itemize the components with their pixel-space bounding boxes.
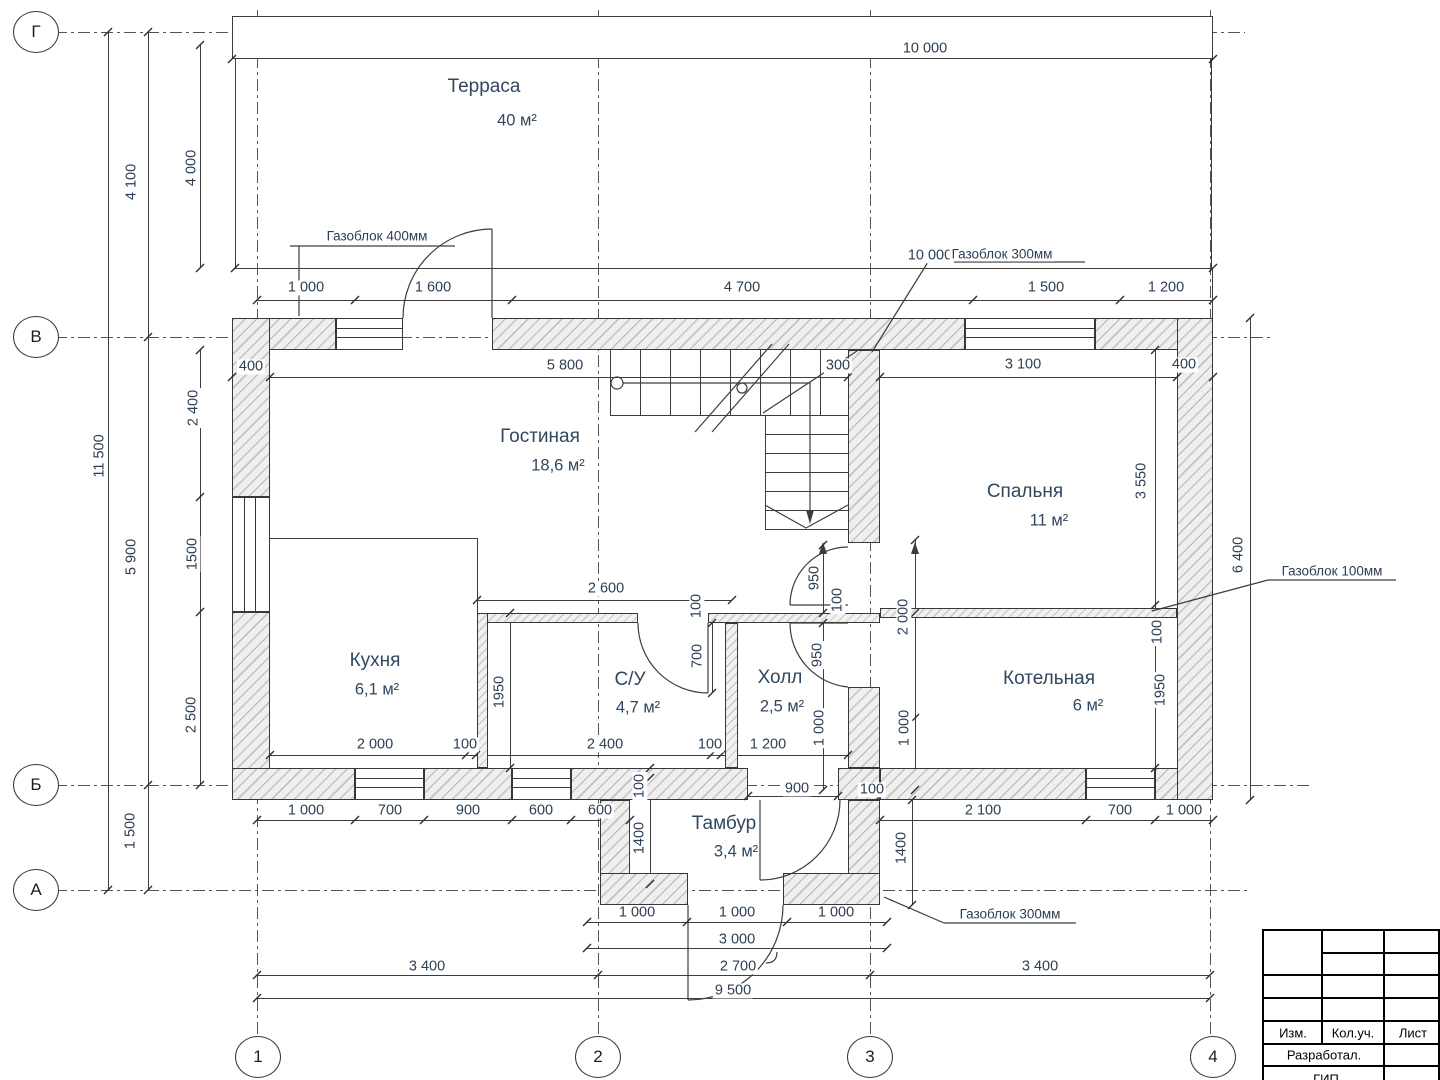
grid-bubble-a: А	[13, 869, 59, 911]
dim-line	[587, 922, 887, 923]
dimension-label: 1950	[492, 674, 507, 710]
grid-bubble-label: 1	[253, 1047, 262, 1067]
dim-line	[880, 377, 1213, 378]
room-label-hall: Холл	[758, 667, 803, 689]
title-block: Изм. Кол.уч. Лист Разработал. ГИП	[1262, 929, 1440, 1080]
dimension-ticks	[104, 28, 1254, 1002]
stair-bottom-line	[610, 415, 768, 416]
dimension-label: 700	[690, 642, 705, 670]
dimension-label: 1 200	[1146, 280, 1186, 295]
grid-bubble-3: 3	[847, 1036, 893, 1078]
dimension-label: 10 000	[901, 41, 949, 56]
dimension-label: 950	[810, 641, 825, 669]
stair-horizontal-run	[610, 350, 848, 415]
title-block-izm: Изм.	[1279, 1026, 1307, 1041]
stair-vertical-run	[765, 415, 848, 530]
dimension-label: 3 400	[407, 959, 447, 974]
dim-line	[270, 755, 848, 756]
dim-line	[915, 540, 916, 790]
room-label-boiler: Котельная	[1003, 668, 1095, 690]
wall-stair	[848, 687, 880, 768]
dimension-label: 5 800	[545, 358, 585, 373]
dimension-label: 900	[454, 803, 482, 818]
note-gasblock-400: Газоблок 400мм	[325, 229, 430, 244]
dimension-label: 1 000	[1164, 803, 1204, 818]
grid-line-2	[598, 10, 599, 1036]
dimension-label: 5 900	[124, 537, 139, 577]
room-label-vestibule: Тамбур	[692, 813, 757, 835]
dimension-label: 600	[586, 803, 614, 818]
dimension-label: 4 100	[124, 162, 139, 202]
kitchen-right-line	[477, 538, 478, 613]
dimension-label: 11 500	[92, 432, 107, 479]
dim-line	[712, 623, 713, 693]
dimension-label: 1 000	[717, 905, 757, 920]
stair-run-left-line	[765, 415, 766, 530]
dimension-label: 1500	[185, 536, 200, 572]
dimension-label: 3 550	[1134, 461, 1149, 501]
wall-right	[1177, 318, 1213, 800]
dimension-label: 2 000	[896, 597, 911, 637]
dimension-label: 1 000	[897, 708, 912, 748]
window	[336, 318, 403, 350]
dimension-label: 1400	[894, 830, 909, 866]
wall-top	[492, 318, 965, 350]
dimension-label: 600	[527, 803, 555, 818]
dimension-label: 1 000	[286, 280, 326, 295]
wall-bottom	[571, 768, 748, 800]
room-area-living: 18,6 м²	[531, 457, 585, 476]
dimension-label: 1 500	[123, 811, 138, 851]
dimension-label: 1 600	[413, 280, 453, 295]
room-area-boiler: 6 м²	[1073, 697, 1104, 716]
dimension-label: 3 100	[1003, 357, 1043, 372]
title-block-koluch: Кол.уч.	[1332, 1026, 1375, 1041]
grid-bubble-label: В	[30, 327, 41, 347]
title-block-razrabotal: Разработал.	[1287, 1048, 1361, 1063]
title-block-list: Лист	[1399, 1026, 1427, 1041]
title-block-gip: ГИП	[1313, 1072, 1339, 1080]
grid-bubble-b: Б	[13, 764, 59, 806]
right-edge-segment	[1212, 268, 1213, 318]
dimension-label: 3 400	[1020, 959, 1060, 974]
dimension-label: 900	[783, 781, 811, 796]
dim-line	[880, 820, 1213, 821]
dimension-label: 100	[451, 737, 479, 752]
dimension-label: 1 200	[748, 737, 788, 752]
dimension-label: 950	[807, 564, 822, 592]
dimension-label: 700	[1106, 803, 1134, 818]
dimension-label: 2 600	[586, 581, 626, 596]
grid-bubble-2: 2	[575, 1036, 621, 1078]
wall-vestibule-bottom	[600, 873, 688, 905]
room-label-living: Гостиная	[500, 426, 580, 448]
dimension-label: 100	[689, 592, 704, 620]
grid-bubble-v: В	[13, 316, 59, 358]
dimension-label: 1400	[632, 820, 647, 856]
dimension-label: 100	[830, 586, 845, 614]
grid-bubble-label: Б	[30, 775, 41, 795]
dimension-label: 4 000	[184, 148, 199, 188]
note-gasblock-300-bottom: Газоблок 300мм	[958, 907, 1063, 922]
dim-line	[510, 613, 511, 768]
dim-line	[148, 32, 149, 890]
grid-bubble-4: 4	[1190, 1036, 1236, 1078]
stair-left-line	[610, 350, 611, 415]
terrace-left-edge	[235, 59, 236, 268]
dim-line	[200, 45, 201, 268]
kitchen-top-line	[270, 538, 477, 539]
dimension-label: 1950	[1153, 672, 1168, 708]
room-area-vestibule: 3,4 м²	[714, 843, 758, 862]
room-area-bedroom: 11 м²	[1030, 512, 1069, 531]
dimension-label: 10 000	[906, 248, 954, 263]
window	[512, 768, 571, 800]
dimension-label: 1 000	[617, 905, 657, 920]
room-area-bathroom: 4,7 м²	[616, 699, 660, 718]
room-label-kitchen: Кухня	[350, 650, 401, 672]
dimension-label: 1 500	[1026, 280, 1066, 295]
dim-line	[257, 975, 1210, 976]
grid-bubble-g: Г	[13, 11, 59, 53]
dim-line	[912, 800, 913, 905]
note-gasblock-300-top: Газоблок 300мм	[950, 247, 1055, 262]
wall-left	[232, 318, 270, 497]
grid-bubble-label: Г	[31, 22, 40, 42]
dimension-label: 400	[237, 359, 265, 374]
room-label-bedroom: Спальня	[987, 481, 1063, 503]
partition	[880, 608, 1177, 618]
dimension-label: 100	[858, 782, 886, 797]
wall-stair	[848, 350, 880, 543]
dimension-label: 3 000	[717, 932, 757, 947]
dimension-label: 100	[1150, 618, 1165, 646]
partition	[477, 613, 638, 623]
grid-bubble-label: 2	[593, 1047, 602, 1067]
terrace-right-edge	[1211, 59, 1212, 268]
dim-line	[1250, 318, 1251, 800]
grid-bubble-label: 4	[1208, 1047, 1217, 1067]
dim-line	[257, 300, 1213, 301]
dim-line	[587, 948, 887, 949]
wall-bottom	[880, 768, 1086, 800]
partition	[708, 613, 880, 623]
dimension-label: 1 000	[812, 708, 827, 748]
window	[355, 768, 424, 800]
window	[965, 318, 1095, 350]
dimension-label: 6 400	[1231, 535, 1246, 575]
partition	[725, 623, 738, 768]
terrace-edge-band	[232, 16, 1213, 59]
window	[1086, 768, 1155, 800]
floor-plan-canvas: 10 00010 0001 0001 6004 7001 5001 200400…	[0, 0, 1440, 1080]
grid-bubble-label: 3	[865, 1047, 874, 1067]
room-area-hall: 2,5 м²	[760, 698, 804, 717]
dimension-label: 2 700	[718, 959, 758, 974]
room-area-terrace: 40 м²	[497, 112, 537, 131]
dim-line	[257, 820, 630, 821]
terrace-bottom-edge	[235, 268, 1213, 269]
dimension-label: 4 700	[722, 280, 762, 295]
wall-bottom	[424, 768, 512, 800]
grid-bubble-label: А	[30, 880, 41, 900]
dim-line	[108, 32, 109, 890]
dimension-label: 300	[824, 358, 852, 373]
dimension-label: 400	[1170, 357, 1198, 372]
dimension-label: 100	[696, 737, 724, 752]
door-hall-vestibule	[760, 800, 840, 880]
dimension-label: 2 000	[355, 737, 395, 752]
dimension-label: 1 000	[286, 803, 326, 818]
room-label-terrace: Терраса	[448, 76, 521, 98]
wall-bottom	[232, 768, 355, 800]
dimension-label: 100	[632, 772, 647, 800]
note-gasblock-100: Газоблок 100мм	[1280, 564, 1385, 579]
dimension-label: 1 000	[816, 905, 856, 920]
wall-vestibule-bottom	[783, 873, 880, 905]
dimension-label: 2 100	[963, 803, 1003, 818]
room-label-bathroom: С/У	[614, 669, 645, 691]
grid-bubble-1: 1	[235, 1036, 281, 1078]
room-area-kitchen: 6,1 м²	[355, 681, 399, 700]
dimension-label: 9 500	[713, 983, 753, 998]
dimension-label: 700	[376, 803, 404, 818]
dimension-label: 2 400	[585, 737, 625, 752]
dimension-label: 2 400	[186, 388, 201, 428]
window	[232, 497, 270, 612]
dimension-label: 2 500	[184, 695, 199, 735]
